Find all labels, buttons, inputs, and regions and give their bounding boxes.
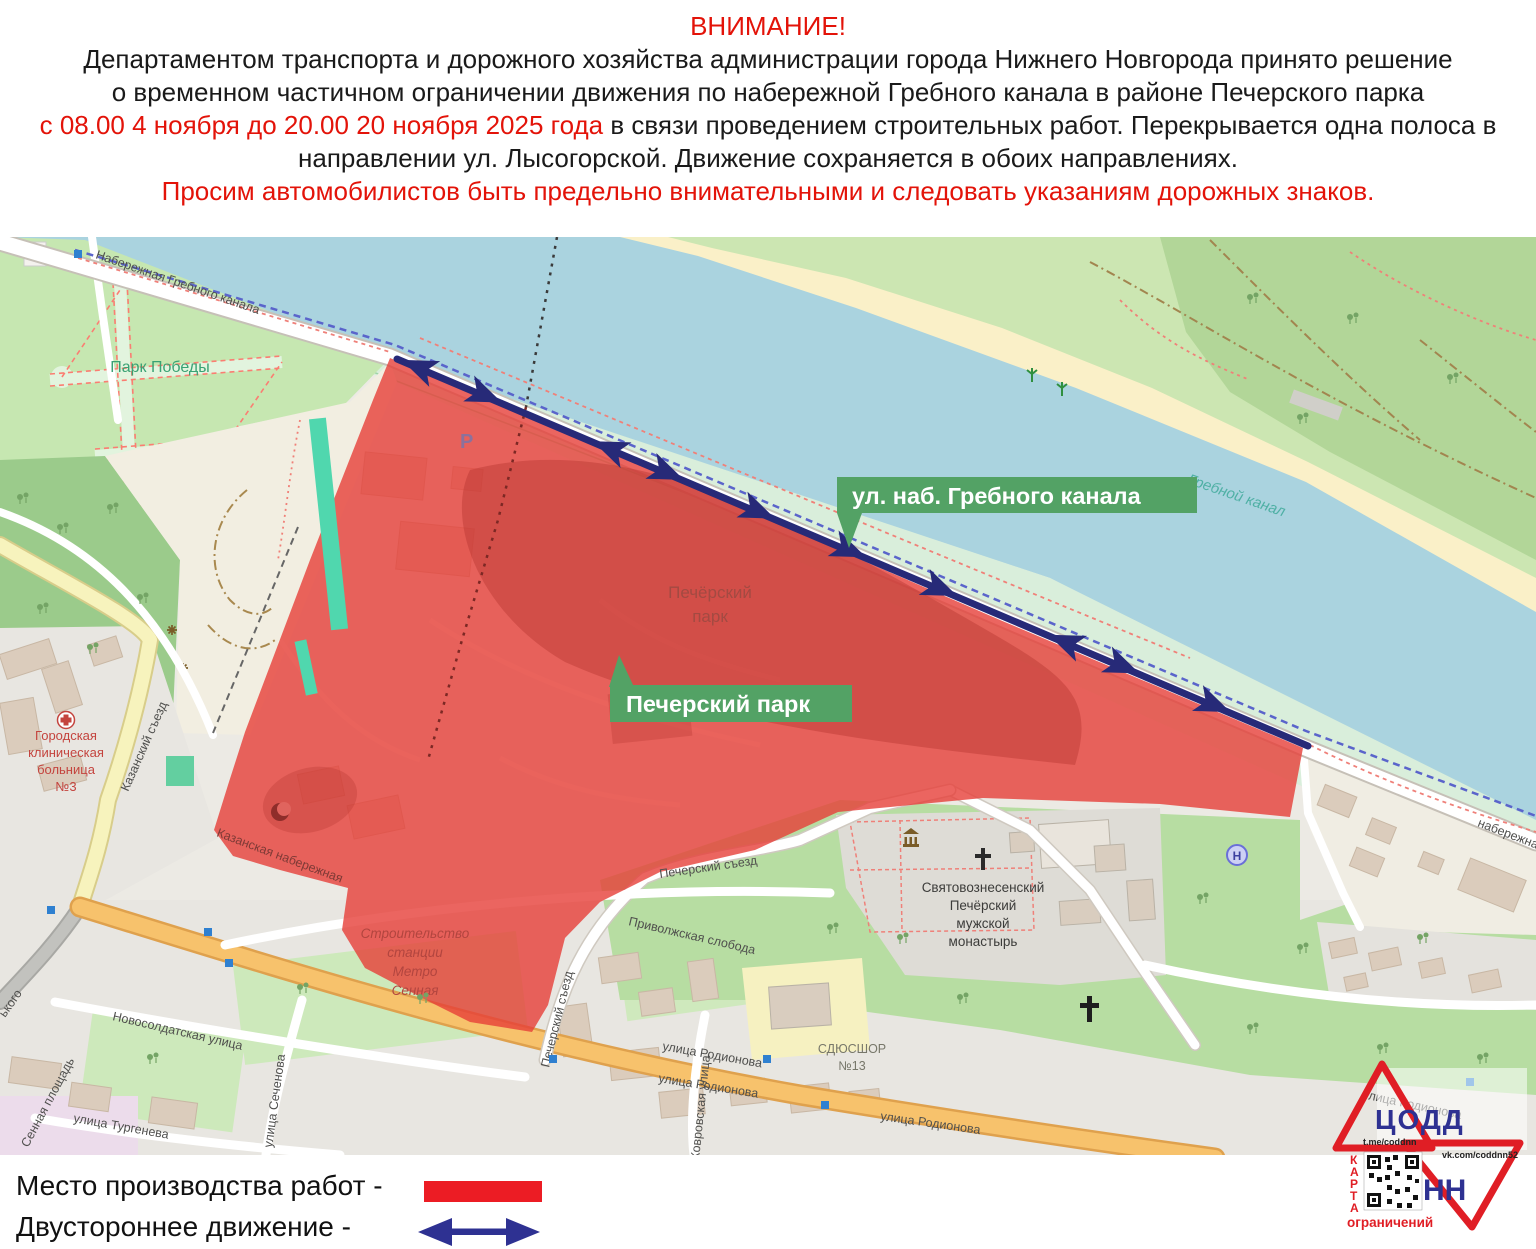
garden-icon: [167, 625, 177, 635]
announcement-header: ВНИМАНИЕ! Департаментом транспорта и дор…: [0, 10, 1536, 208]
svg-text:СДЮСШОР: СДЮСШОР: [818, 1042, 886, 1056]
svg-text:H: H: [1233, 849, 1242, 863]
svg-text:Городская: Городская: [35, 728, 97, 743]
svg-text:станции: станции: [387, 945, 443, 960]
sports-pitch: [166, 756, 194, 786]
svg-text:мужской: мужской: [956, 916, 1009, 931]
park-pobedy-label: Парк Победы: [110, 359, 210, 376]
legend-two-way: Двустороннее движение -: [16, 1211, 351, 1243]
header-warning: Просим автомобилистов быть предельно вни…: [0, 175, 1536, 208]
svg-text:парк: парк: [692, 607, 728, 626]
helipad-icon: H: [1227, 845, 1247, 865]
logo-org: ЦОДД: [1375, 1104, 1465, 1135]
legend-work-zone: Место производства работ -: [16, 1170, 383, 1202]
map-svg: Р Казанская набережная Строительство ста…: [0, 237, 1536, 1155]
logo-karta: К А Р Т А: [1350, 1153, 1359, 1215]
header-line-2: Департаментом транспорта и дорожного хоз…: [0, 43, 1536, 76]
parking-letter: Р: [460, 431, 473, 453]
svg-text:№13: №13: [838, 1059, 865, 1073]
svg-text:Печёрский: Печёрский: [950, 898, 1017, 913]
logo-vk: vk.com/coddnn52: [1442, 1150, 1518, 1160]
header-line-5: направлении ул. Лысогорской. Движение со…: [0, 142, 1536, 175]
header-dates: с 08.00 4 ноября до 20.00 20 ноября 2025…: [40, 110, 604, 140]
two-way-arrow-icon: [416, 1214, 542, 1248]
qr-code: [1364, 1152, 1422, 1210]
park-badge-label: Печерский парк: [626, 691, 810, 717]
work-zone-swatch: [424, 1181, 542, 1202]
svg-text:Печёрский: Печёрский: [668, 583, 752, 602]
logo-city: НН: [1423, 1174, 1466, 1207]
svg-text:А: А: [1350, 1201, 1359, 1215]
svg-text:клиническая: клиническая: [28, 745, 104, 760]
map-canvas[interactable]: Р Казанская набережная Строительство ста…: [0, 237, 1536, 1155]
header-line-4: с 08.00 4 ноября до 20.00 20 ноября 2025…: [0, 109, 1536, 142]
logo-restrictions: ограничений: [1347, 1215, 1433, 1230]
svg-text:больница: больница: [37, 762, 96, 777]
codd-logo: ЦОДД t.me/coddnn vk.com/coddnn52 НН К А …: [1325, 1055, 1536, 1249]
svg-text:Строительство: Строительство: [361, 926, 470, 941]
svg-text:Метро: Метро: [393, 964, 438, 979]
svg-text:монастырь: монастырь: [949, 934, 1018, 949]
embankment-badge-label: ул. наб. Гребного канала: [852, 483, 1142, 509]
hospital-icon: [58, 712, 75, 729]
header-attention: ВНИМАНИЕ!: [0, 10, 1536, 43]
header-line-3: о временном частичном ограничении движен…: [0, 76, 1536, 109]
svg-text:Святовознесенский: Святовознесенский: [922, 880, 1045, 895]
header-line-4-rest: в связи проведением строительных работ. …: [603, 110, 1496, 140]
svg-text:№3: №3: [55, 779, 76, 794]
logo-telegram: t.me/coddnn: [1363, 1137, 1417, 1147]
school-building: [769, 983, 832, 1029]
svg-text:Сенная: Сенная: [392, 983, 439, 998]
